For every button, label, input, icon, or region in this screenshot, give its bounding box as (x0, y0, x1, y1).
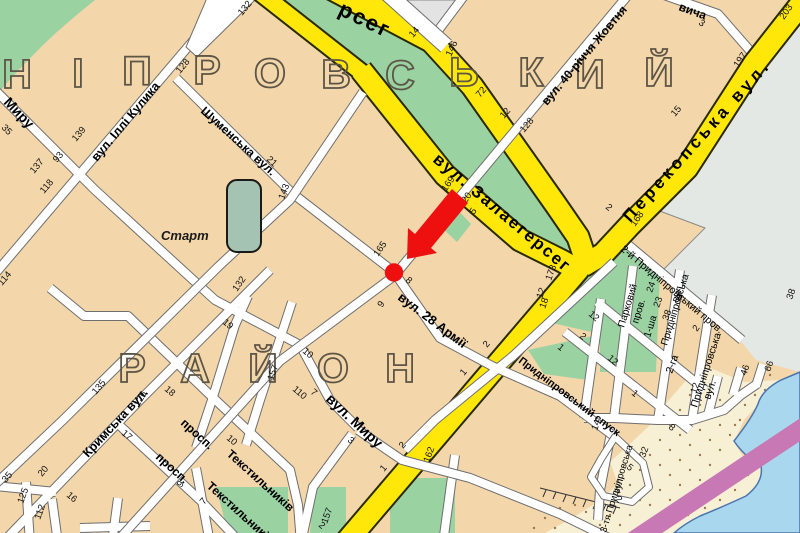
svg-text:Й: Й (644, 49, 673, 95)
svg-text:К: К (518, 49, 544, 95)
svg-text:Н: Н (2, 51, 32, 97)
svg-text:В: В (321, 51, 351, 97)
svg-text:О: О (254, 50, 286, 96)
svg-text:І: І (72, 50, 83, 96)
svg-text:Н: Н (385, 345, 415, 391)
svg-text:Старт: Старт (161, 228, 209, 243)
svg-text:Р: Р (118, 345, 145, 391)
svg-text:О: О (317, 345, 349, 391)
svg-text:А: А (180, 345, 210, 391)
svg-text:Р: Р (193, 47, 220, 93)
svg-text:С: С (385, 52, 415, 98)
